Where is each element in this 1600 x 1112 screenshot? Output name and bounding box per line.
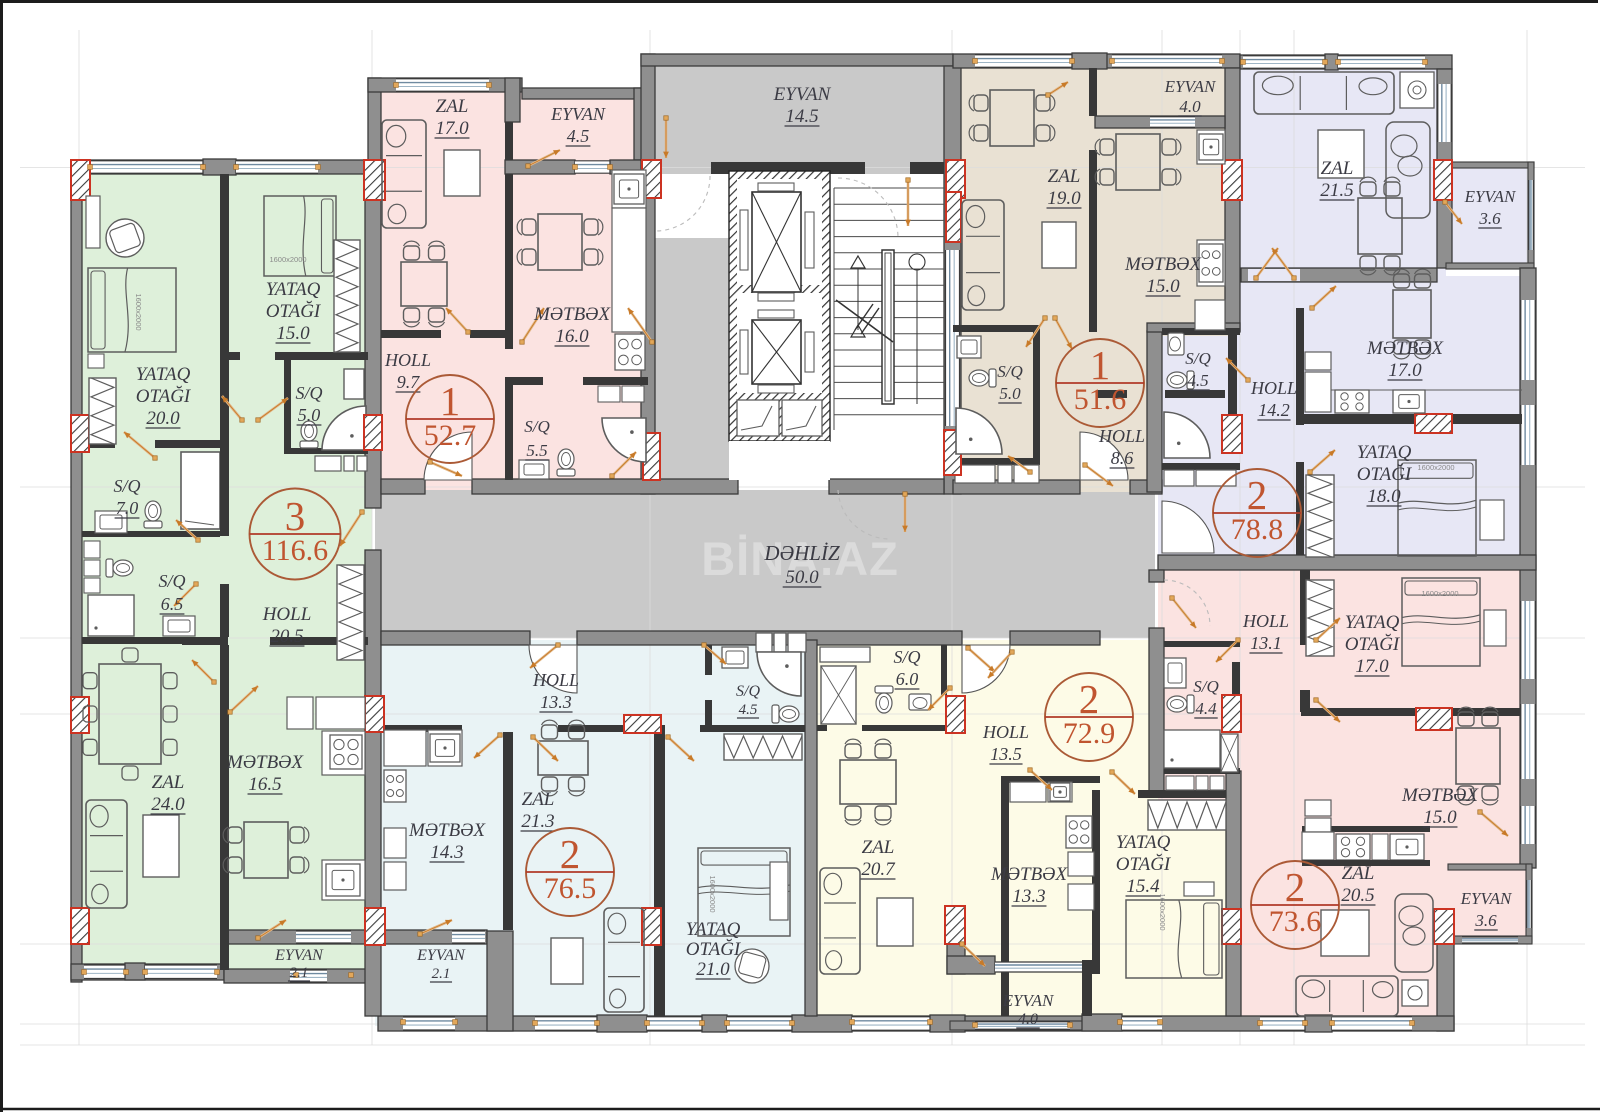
svg-text:14.3: 14.3 (430, 842, 463, 863)
svg-text:50.0: 50.0 (785, 567, 819, 588)
svg-text:1600x2000: 1600x2000 (708, 875, 717, 912)
svg-text:15.0: 15.0 (1146, 276, 1180, 297)
svg-text:76.5: 76.5 (544, 872, 597, 905)
svg-text:ZAL: ZAL (1321, 158, 1354, 179)
svg-text:HOLL: HOLL (1242, 611, 1289, 631)
svg-text:MƏTBƏX: MƏTBƏX (226, 752, 304, 773)
svg-text:MƏTBƏX: MƏTBƏX (1366, 338, 1444, 359)
svg-text:ZAL: ZAL (152, 772, 185, 793)
svg-text:17.0: 17.0 (1388, 360, 1422, 381)
svg-text:HOLL: HOLL (982, 722, 1029, 742)
svg-text:ZAL: ZAL (436, 96, 469, 117)
svg-text:13.5: 13.5 (990, 744, 1022, 764)
svg-text:2: 2 (1247, 472, 1268, 518)
svg-text:15.0: 15.0 (1423, 807, 1457, 828)
svg-text:YATAQ: YATAQ (136, 364, 191, 385)
svg-text:1600x2000: 1600x2000 (1417, 463, 1454, 472)
svg-text:YATAQ: YATAQ (1357, 442, 1412, 463)
svg-text:1600x2000: 1600x2000 (269, 255, 306, 264)
svg-text:OTAĞI: OTAĞI (686, 938, 742, 960)
svg-text:4.5: 4.5 (739, 702, 758, 718)
svg-text:HOLL: HOLL (384, 350, 431, 370)
svg-text:14.2: 14.2 (1258, 400, 1290, 420)
svg-text:13.3: 13.3 (1012, 886, 1045, 907)
svg-text:MƏTBƏX: MƏTBƏX (1401, 785, 1479, 806)
svg-text:OTAĞI: OTAĞI (1345, 633, 1401, 655)
svg-text:3: 3 (285, 493, 306, 539)
svg-text:7.0: 7.0 (116, 498, 139, 518)
svg-text:2.1: 2.1 (290, 965, 309, 981)
svg-text:14.5: 14.5 (785, 106, 818, 127)
svg-text:MƏTBƏX: MƏTBƏX (990, 864, 1068, 885)
svg-text:51.6: 51.6 (1074, 383, 1127, 416)
svg-text:15.4: 15.4 (1126, 876, 1160, 897)
svg-text:YATAQ: YATAQ (686, 919, 741, 940)
svg-text:EYVAN: EYVAN (274, 947, 324, 964)
svg-text:S/Q: S/Q (1193, 677, 1219, 696)
svg-text:OTAĞI: OTAĞI (1357, 463, 1413, 485)
svg-text:52.7: 52.7 (424, 419, 477, 452)
svg-text:HOLL: HOLL (262, 604, 312, 625)
svg-text:1600x2000: 1600x2000 (1158, 893, 1167, 930)
svg-text:15.0: 15.0 (276, 323, 310, 344)
svg-text:ZAL: ZAL (522, 789, 555, 810)
svg-text:5.0: 5.0 (298, 405, 321, 425)
svg-text:16.5: 16.5 (248, 774, 281, 795)
svg-text:4.0: 4.0 (1018, 1011, 1038, 1028)
svg-text:20.5: 20.5 (270, 626, 303, 647)
svg-text:ZAL: ZAL (1342, 863, 1375, 884)
svg-text:4.4: 4.4 (1195, 699, 1217, 718)
svg-text:HOLL: HOLL (1098, 426, 1145, 446)
svg-text:YATAQ: YATAQ (266, 279, 321, 300)
svg-text:20.5: 20.5 (1341, 885, 1374, 906)
svg-text:19.0: 19.0 (1047, 188, 1081, 209)
svg-text:2.1: 2.1 (432, 966, 451, 982)
svg-text:OTAĞI: OTAĞI (266, 300, 322, 322)
svg-text:OTAĞI: OTAĞI (136, 385, 192, 407)
svg-text:YATAQ: YATAQ (1116, 832, 1171, 853)
svg-text:116.6: 116.6 (262, 534, 328, 567)
svg-text:6.5: 6.5 (161, 594, 184, 614)
svg-text:MƏTBƏX: MƏTBƏX (533, 304, 611, 325)
svg-text:MƏTBƏX: MƏTBƏX (1124, 254, 1202, 275)
svg-text:72.9: 72.9 (1063, 717, 1116, 750)
svg-text:1600x2000: 1600x2000 (1421, 589, 1458, 598)
svg-text:5.0: 5.0 (999, 384, 1021, 403)
svg-text:17.0: 17.0 (1355, 656, 1389, 677)
svg-text:1: 1 (440, 378, 461, 424)
svg-text:S/Q: S/Q (736, 683, 760, 700)
svg-text:4.5: 4.5 (1187, 371, 1208, 390)
svg-text:13.3: 13.3 (540, 692, 572, 712)
svg-text:13.1: 13.1 (1250, 633, 1282, 653)
svg-text:5.5: 5.5 (526, 441, 547, 460)
svg-text:S/Q: S/Q (114, 476, 141, 496)
svg-text:24.0: 24.0 (151, 794, 185, 815)
svg-text:1600x2000: 1600x2000 (134, 293, 143, 330)
svg-text:21.3: 21.3 (521, 811, 554, 832)
svg-text:16.0: 16.0 (555, 326, 589, 347)
svg-text:73.6: 73.6 (1269, 905, 1322, 938)
svg-text:S/Q: S/Q (1185, 349, 1211, 368)
svg-text:3.6: 3.6 (1478, 209, 1501, 228)
svg-text:EYVAN: EYVAN (416, 947, 466, 964)
svg-text:EYVAN: EYVAN (1460, 889, 1513, 908)
svg-text:S/Q: S/Q (894, 647, 921, 667)
svg-text:EYVAN: EYVAN (773, 84, 832, 105)
svg-text:21.0: 21.0 (696, 959, 730, 980)
svg-text:HOLL: HOLL (1250, 378, 1297, 398)
svg-text:20.7: 20.7 (861, 859, 896, 880)
svg-text:DƏHLİZ: DƏHLİZ (763, 541, 840, 565)
svg-text:YATAQ: YATAQ (1345, 612, 1400, 633)
svg-text:EYVAN: EYVAN (1164, 77, 1217, 96)
svg-text:ZAL: ZAL (1048, 166, 1081, 187)
svg-text:S/Q: S/Q (159, 571, 186, 591)
svg-text:8.6: 8.6 (1111, 448, 1134, 468)
svg-text:OTAĞI: OTAĞI (1116, 853, 1172, 875)
svg-text:3.6: 3.6 (1474, 911, 1497, 930)
svg-text:17.0: 17.0 (435, 118, 469, 139)
svg-text:EYVAN: EYVAN (1464, 187, 1517, 206)
svg-text:HOLL: HOLL (532, 670, 579, 690)
svg-text:1: 1 (1090, 342, 1111, 388)
svg-text:S/Q: S/Q (524, 417, 550, 436)
svg-text:20.0: 20.0 (146, 408, 180, 429)
svg-text:6.0: 6.0 (896, 669, 919, 689)
svg-text:2: 2 (1285, 864, 1306, 910)
svg-text:S/Q: S/Q (296, 383, 323, 403)
svg-text:4.5: 4.5 (567, 126, 590, 146)
svg-text:ZAL: ZAL (862, 837, 895, 858)
svg-text:2: 2 (1079, 676, 1100, 722)
svg-text:MƏTBƏX: MƏTBƏX (408, 820, 486, 841)
svg-text:21.5: 21.5 (1320, 180, 1353, 201)
svg-text:S/Q: S/Q (997, 362, 1023, 381)
svg-text:78.8: 78.8 (1231, 513, 1284, 546)
svg-text:2: 2 (560, 831, 581, 877)
svg-text:EYVAN: EYVAN (1002, 991, 1055, 1010)
svg-text:EYVAN: EYVAN (550, 104, 606, 124)
svg-text:18.0: 18.0 (1367, 486, 1401, 507)
svg-text:4.0: 4.0 (1179, 97, 1201, 116)
